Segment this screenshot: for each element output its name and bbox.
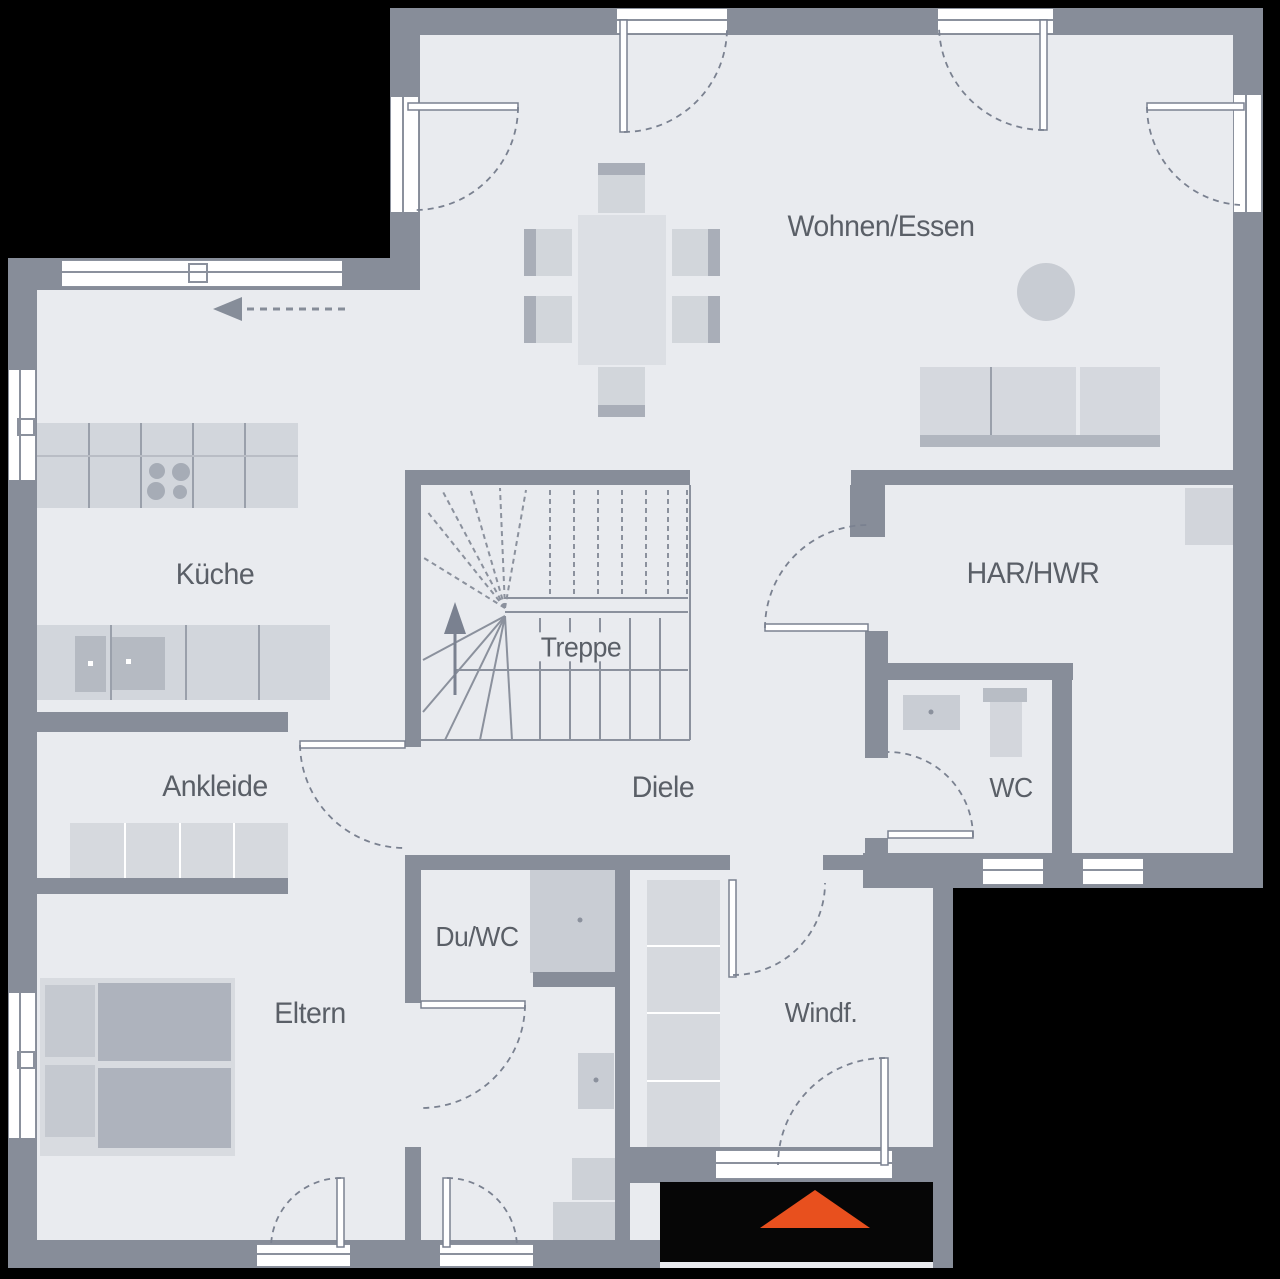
counter-divider	[140, 423, 142, 508]
hall-closet	[647, 880, 720, 1150]
wardrobe	[70, 823, 288, 880]
wall-segment	[883, 663, 1073, 680]
counter-divider	[192, 423, 194, 508]
window	[390, 97, 419, 212]
room-label-eltern: Eltern	[274, 997, 346, 1031]
wall-segment	[405, 870, 421, 1003]
wc-toilet-tank	[983, 688, 1027, 702]
wall-segment	[823, 855, 888, 870]
wall-segment	[533, 972, 630, 987]
chair-back	[708, 296, 720, 343]
kitchen-counter-top	[37, 423, 298, 508]
bed-mattress	[98, 983, 231, 1061]
wall-segment	[405, 855, 730, 870]
room-label-har-hwr: HAR/HWR	[967, 557, 1100, 591]
wall-segment	[851, 470, 1233, 485]
wall-segment	[865, 631, 888, 758]
window	[8, 993, 36, 1138]
window-marker	[17, 1051, 35, 1069]
chair-back	[524, 229, 536, 276]
window	[1233, 95, 1262, 212]
wc-sink	[903, 695, 960, 730]
bath-cabinet	[553, 1202, 617, 1242]
sofa-divider	[990, 367, 992, 435]
wall-segment	[37, 712, 288, 732]
room-label-windfang: Windf.	[785, 997, 858, 1029]
entrance-door-window	[716, 1150, 892, 1179]
chair-back	[524, 296, 536, 343]
window	[62, 260, 342, 287]
window	[8, 370, 36, 480]
wardrobe-divider	[179, 823, 181, 880]
closet-divider	[647, 1012, 720, 1014]
room-label-du-wc: Du/WC	[435, 921, 518, 953]
sofa-divider	[1076, 367, 1080, 435]
bed-pillow	[45, 985, 95, 1057]
wall-segment	[37, 878, 288, 894]
bed-pillow	[45, 1065, 95, 1137]
chair-back	[598, 163, 645, 175]
wall-segment	[405, 485, 421, 747]
washbasin	[578, 1053, 614, 1109]
room-label-ankleide: Ankleide	[162, 770, 268, 804]
wall-segment	[615, 870, 630, 1247]
wardrobe-divider	[233, 823, 235, 880]
sink-dot	[88, 661, 93, 666]
chair	[524, 229, 572, 276]
chair-back	[708, 229, 720, 276]
kitchen-stove-unit	[112, 637, 165, 690]
chair	[524, 296, 572, 343]
window	[983, 858, 1043, 885]
wall-segment	[863, 853, 1263, 888]
window-marker	[17, 418, 35, 436]
room-label-wc: WC	[989, 772, 1032, 804]
chair	[598, 163, 645, 213]
wall-segment	[865, 838, 888, 855]
floor-plan: Wohnen/Essen Küche Treppe HAR/HWR Anklei…	[0, 0, 1280, 1279]
wall-segment	[405, 470, 690, 485]
closet-divider	[647, 1080, 720, 1082]
wall-segment	[850, 485, 885, 537]
counter-divider	[244, 423, 246, 508]
har-corner-unit	[1185, 488, 1240, 545]
plan-cutout	[0, 0, 390, 258]
wall-segment	[390, 8, 1263, 35]
wardrobe-divider	[124, 823, 126, 880]
window	[1083, 858, 1143, 885]
room-floor-upper	[390, 8, 1263, 290]
room-label-wohnen-essen: Wohnen/Essen	[787, 210, 974, 244]
counter-divider	[185, 625, 187, 700]
entrance-marker-box	[660, 1182, 933, 1262]
room-label-kueche: Küche	[176, 558, 254, 592]
closet-divider	[647, 945, 720, 947]
window	[938, 8, 1053, 34]
room-label-treppe: Treppe	[537, 632, 625, 661]
terrace-door	[440, 1244, 533, 1267]
sink-dot	[126, 659, 131, 664]
counter-divider	[88, 423, 90, 508]
counter-edge	[37, 455, 298, 457]
sofa	[920, 367, 1160, 435]
wall-segment	[933, 888, 953, 1268]
dining-table	[578, 215, 666, 365]
wall-segment	[405, 1147, 421, 1247]
window-marker	[188, 263, 208, 283]
chair-back	[598, 405, 645, 417]
chair	[598, 367, 645, 417]
room-label-diele: Diele	[632, 771, 695, 805]
chair	[672, 296, 720, 343]
toilet	[572, 1158, 617, 1200]
counter-divider	[258, 625, 260, 700]
wc-toilet-bowl	[990, 702, 1022, 757]
window	[617, 8, 727, 34]
chair	[672, 229, 720, 276]
plan-cutout	[953, 888, 1280, 1279]
sofa-front	[920, 435, 1160, 447]
bed-mattress	[98, 1068, 231, 1148]
wall-segment	[1052, 678, 1072, 853]
terrace-door	[257, 1244, 350, 1267]
